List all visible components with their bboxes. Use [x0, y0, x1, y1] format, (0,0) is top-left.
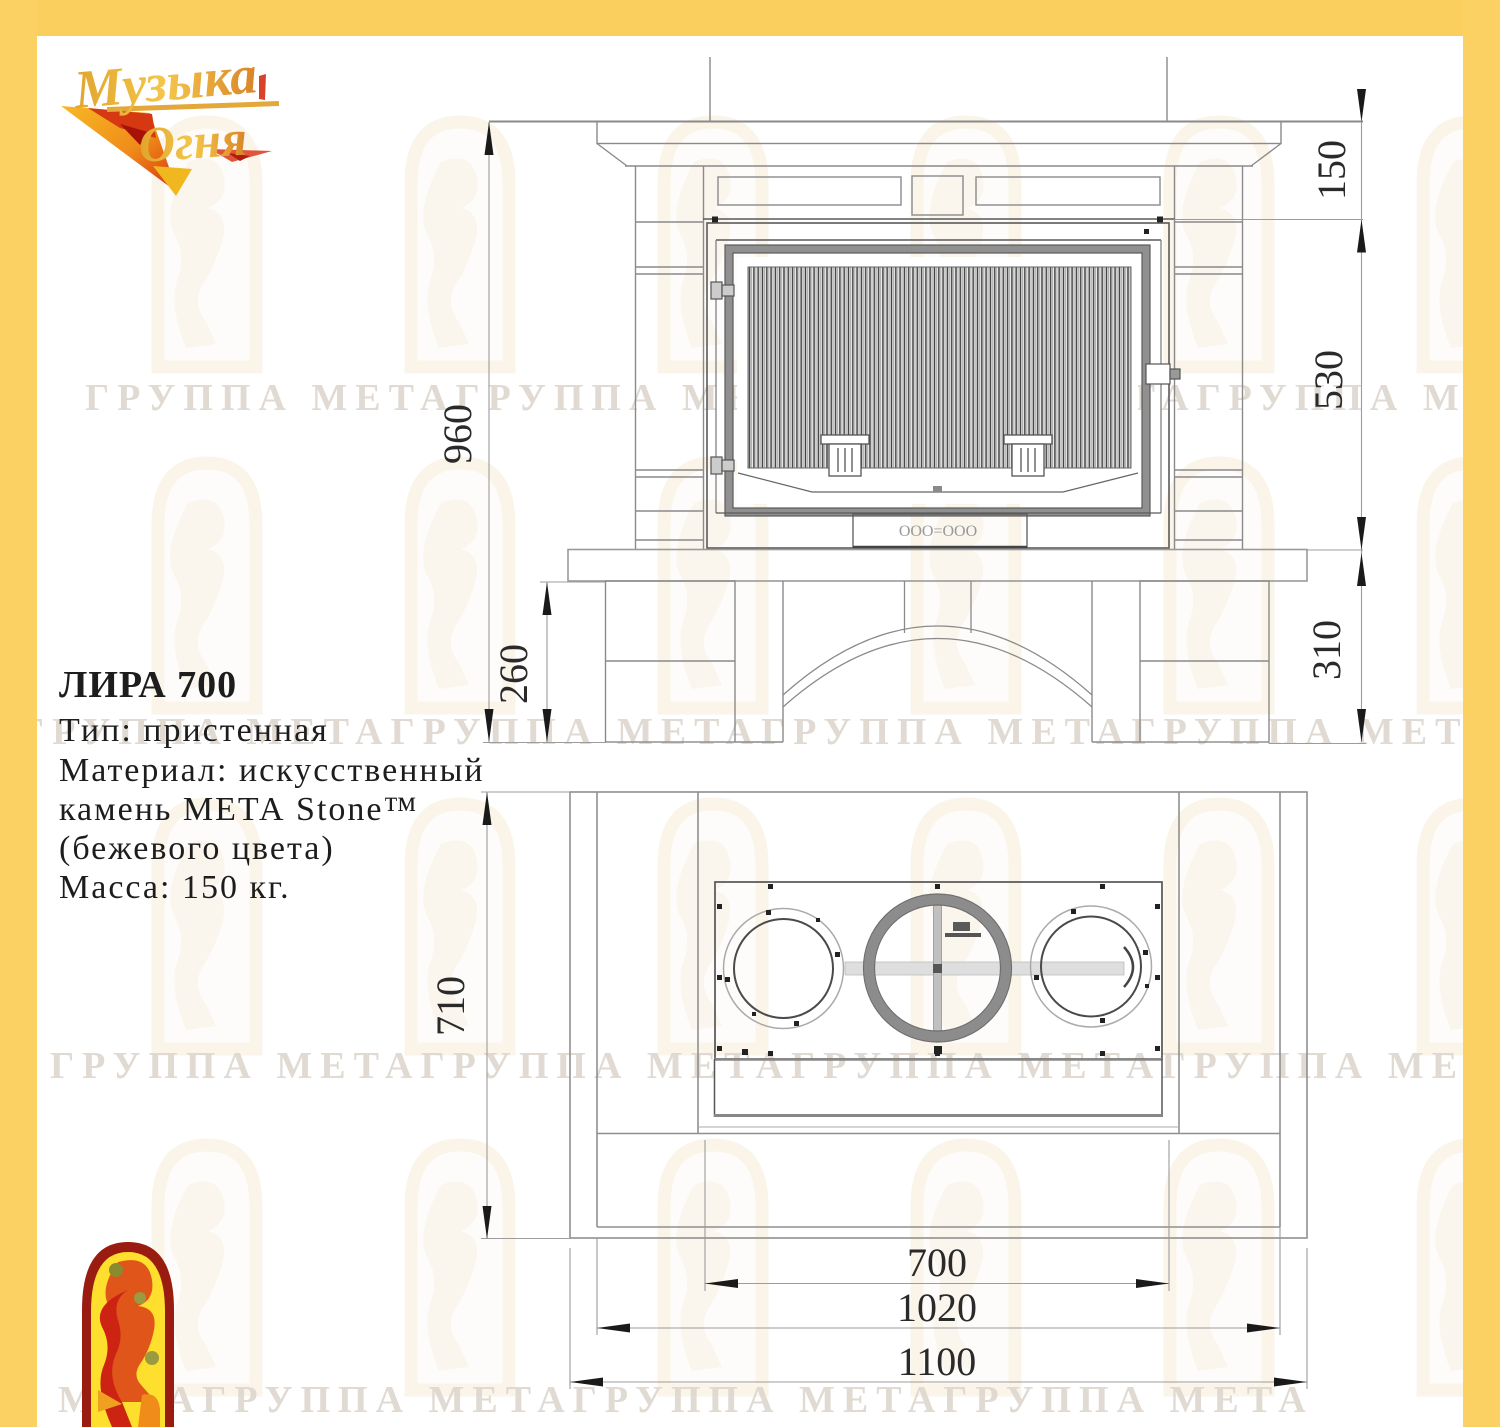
svg-text:530: 530: [1306, 350, 1351, 410]
svg-text:ООО=ООО: ООО=ООО: [899, 523, 977, 540]
svg-text:960: 960: [435, 404, 480, 464]
svg-text:(бежевого цвета): (бежевого цвета): [59, 830, 335, 867]
svg-text:1020: 1020: [897, 1285, 977, 1330]
svg-text:1100: 1100: [898, 1339, 977, 1384]
svg-text:ЛИРА 700: ЛИРА 700: [59, 664, 237, 706]
svg-text:710: 710: [428, 976, 473, 1036]
svg-text:150: 150: [1309, 140, 1354, 200]
svg-text:Огня: Огня: [137, 110, 249, 173]
svg-text:Масса: 150 кг.: Масса: 150 кг.: [59, 869, 291, 906]
svg-text:700: 700: [907, 1240, 967, 1285]
svg-text:камень МЕТА Stone™: камень МЕТА Stone™: [59, 791, 419, 828]
svg-text:Материал: искусственный: Материал: искусственный: [59, 752, 485, 789]
svg-text:310: 310: [1304, 620, 1349, 680]
svg-text:260: 260: [491, 644, 536, 704]
svg-text:Тип: пристенная: Тип: пристенная: [59, 712, 329, 749]
svg-text:ГРУППА МЕТАГРУППА МЕТАГРУППА М: ГРУППА МЕТАГРУППА МЕТАГРУППА МЕТАГРУППА …: [50, 1045, 1500, 1087]
svg-text:ППА МЕТАГРУППА МЕТАГРУППА МЕТА: ППА МЕТАГРУППА МЕТАГРУППА МЕТАГРУППА МЕТ…: [0, 1379, 1314, 1421]
